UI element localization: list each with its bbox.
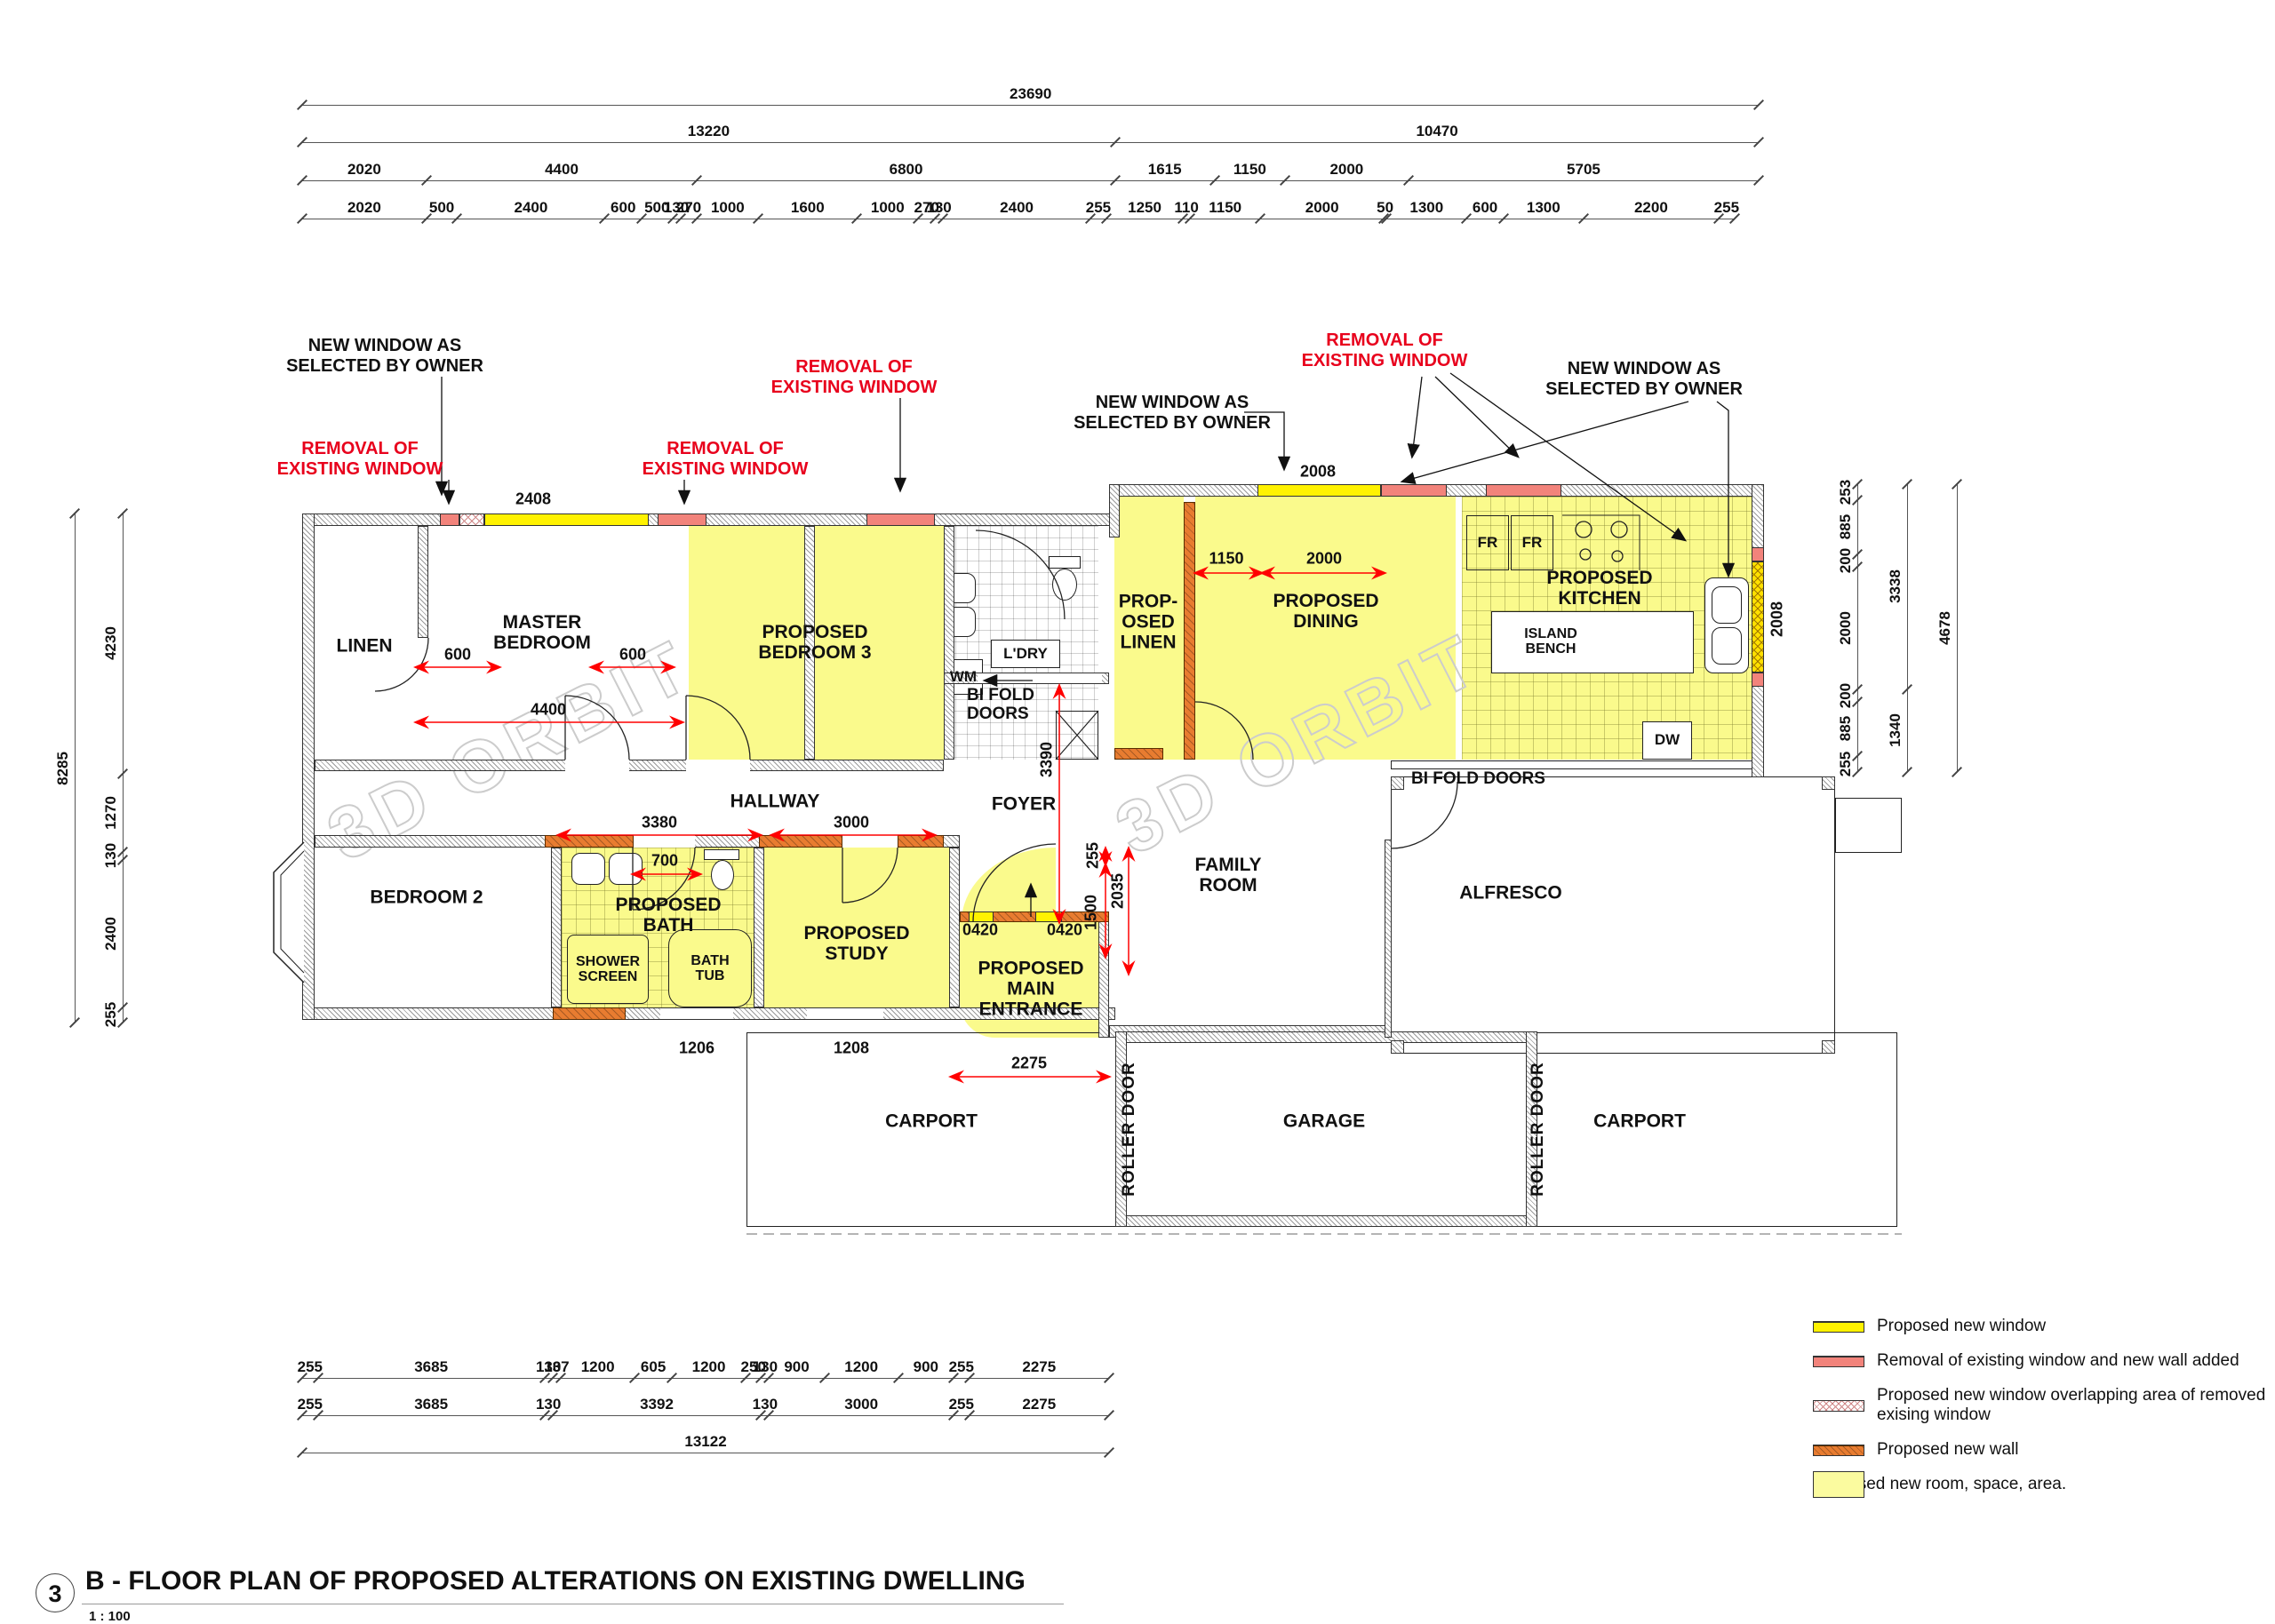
dimension-value: 255 [298,1396,323,1413]
dimension-line [302,1415,1109,1416]
label-shower-screen: SHOWER SCREEN [576,954,640,984]
dimension-line [302,219,1735,219]
legend-label: Removal of existing window and new wall … [1877,1351,2239,1371]
dimension-value: 600 [1473,199,1497,217]
dimension-value: 130 [102,843,120,868]
dimension-value: 255 [298,1358,323,1376]
room-label-carport-left: CARPORT [885,1111,978,1132]
room-label-kitchen: PROPOSED KITCHEN [1546,568,1652,609]
inline-dimension: 255 [1084,842,1103,869]
room-label-bedroom2: BEDROOM 2 [370,888,483,908]
legend-swatch-removal [1813,1356,1864,1367]
room-label-foyer: FOYER [992,794,1056,815]
dimension-value: 255 [1714,199,1739,217]
dimension-value: 885 [1837,514,1855,539]
room-label-carport-right: CARPORT [1593,1111,1686,1132]
inline-dimension: 0420 [1047,921,1082,940]
dimension-line [302,1378,1109,1379]
label-fridge: FR [1478,534,1498,552]
dimension-value: 200 [1837,547,1855,572]
dimension-value: 1200 [844,1358,878,1376]
dimension-value: 2000 [1837,611,1855,645]
dimension-line [1857,484,1858,772]
drawing-number: 3 [36,1573,75,1612]
dimension-value: 1615 [1148,161,1182,179]
label-bath-tub: BATH TUB [690,953,729,983]
inline-dimension: 3390 [1038,742,1057,777]
dimension-value: 900 [784,1358,809,1376]
legend-item: Proposed new window [1813,1317,2275,1336]
label-washing-machine: WM [950,668,977,686]
dimension-line [302,142,1759,143]
legend-item: Proposed new window overlapping area of … [1813,1386,2275,1425]
dimension-value: 13122 [684,1433,726,1451]
label-roller-door-right: ROLLER DOOR [1529,1062,1548,1196]
dimension-line [123,513,124,1023]
dimension-value: 3392 [640,1396,674,1413]
annotation-new-window: NEW WINDOW AS SELECTED BY OWNER [1074,393,1271,434]
dimension-value: 255 [1837,752,1855,776]
dimension-value: 4678 [1936,611,1954,645]
inline-dimension: 600 [444,646,471,665]
inline-dimension: 2000 [1306,550,1342,569]
legend-label: Proposed new window overlapping area of … [1877,1386,2275,1425]
dimension-value: 3338 [1887,570,1904,604]
dimension-value: 255 [102,1002,120,1027]
room-label-main-entrance: PROPOSED MAIN ENTRANCE [978,959,1083,1020]
dimension-value: 2020 [347,161,381,179]
dimension-value: 3000 [844,1396,878,1413]
dimension-line [1957,484,1958,772]
dimension-value: 253 [1837,480,1855,505]
dimension-value: 10470 [1416,123,1457,140]
dimension-value: 1000 [871,199,905,217]
inline-dimension: 2035 [1109,873,1128,909]
inline-dimension: 2008 [1768,601,1787,637]
dimension-value: 2020 [347,199,381,217]
dimension-value: 1000 [711,199,745,217]
dimension-value: 2000 [1305,199,1339,217]
room-label-study: PROPOSED STUDY [803,923,909,964]
inline-dimension: 1206 [679,1039,714,1058]
dimension-value: 1270 [102,796,120,830]
dimension-value: 8285 [54,752,72,785]
dimension-value: 1150 [1233,161,1266,179]
dimension-line [1907,484,1908,772]
room-label-bath: PROPOSED BATH [615,895,721,935]
drawing-title: B - FLOOR PLAN OF PROPOSED ALTERATIONS O… [85,1566,1026,1596]
label-roller-door-left: ROLLER DOOR [1120,1062,1139,1196]
label-fridge: FR [1522,534,1543,552]
dimension-line [75,513,76,1023]
dimension-value: 1300 [1409,199,1443,217]
dimension-value: 2200 [1634,199,1668,217]
drawing-scale: 1 : 100 [89,1609,131,1624]
room-label-hallway: HALLWAY [730,792,820,812]
dimension-value: 1200 [581,1358,615,1376]
legend-swatch-new-room [1813,1471,1864,1498]
dimension-value: 50 [1377,199,1393,217]
inline-dimension: 2408 [515,490,551,509]
dimension-value: 2275 [1022,1358,1056,1376]
dimension-value: 1300 [1527,199,1561,217]
label-bifold-doors-foyer: BI FOLD DOORS [967,686,1034,723]
dimension-value: 130 [536,1396,561,1413]
annotation-removal: REMOVAL OF EXISTING WINDOW [643,439,809,480]
label-island-bench: ISLAND BENCH [1524,626,1577,657]
dimension-value: 130 [926,199,951,217]
dimension-value: 255 [1086,199,1111,217]
dimension-value: 270 [676,199,701,217]
dimension-value: 1340 [1887,713,1904,747]
dimension-value: 137 [544,1358,569,1376]
dimension-value: 255 [949,1396,974,1413]
dimension-line [302,1453,1109,1453]
legend-swatch-overlap [1813,1400,1864,1412]
legend-item: Proposed new room, space, area. [1813,1475,2275,1494]
inline-dimension: 2008 [1300,463,1336,482]
inline-dimension: 1150 [1209,550,1243,569]
dimension-value: 6800 [890,161,923,179]
dimension-value: 255 [949,1358,974,1376]
room-label-proposed-linen: PROP- OSED LINEN [1119,592,1178,653]
dimension-value: 2400 [1000,199,1034,217]
dimension-value: 1600 [791,199,825,217]
room-label-laundry: L'DRY [1003,645,1048,663]
dimension-value: 500 [429,199,454,217]
dimension-value: 605 [641,1358,666,1376]
room-label-dining: PROPOSED DINING [1273,591,1378,632]
annotation-removal: REMOVAL OF EXISTING WINDOW [277,439,443,480]
inline-dimension: 3000 [834,814,869,832]
dimension-value: 1200 [692,1358,726,1376]
room-label-master-bedroom: MASTER BEDROOM [493,612,591,653]
dimension-value: 200 [1837,683,1855,708]
dimension-value: 4400 [545,161,579,179]
dimension-value: 2400 [102,917,120,951]
annotation-removal: REMOVAL OF EXISTING WINDOW [1302,330,1468,371]
inline-dimension: 2275 [1011,1055,1047,1073]
legend-item: Removal of existing window and new wall … [1813,1351,2275,1371]
dimension-value: 13220 [688,123,730,140]
inline-dimension: 1208 [834,1039,869,1058]
inline-dimension: 0420 [962,921,998,940]
room-label-bedroom3: PROPOSED BEDROOM 3 [758,622,871,663]
room-label-alfresco: ALFRESCO [1459,883,1562,904]
inline-dimension: 4400 [531,701,566,720]
legend-item: Proposed new wall [1813,1440,2275,1460]
floor-plan: 3D ORBIT 3D ORBIT [0,0,2275,1620]
dimension-line [302,180,1759,181]
inline-dimension: 1500 [1082,895,1101,930]
dimension-value: 4230 [102,626,120,660]
room-label-garage: GARAGE [1283,1111,1365,1132]
annotation-new-window: NEW WINDOW AS SELECTED BY OWNER [1545,359,1743,400]
dimension-value: 130 [753,1396,778,1413]
label-dishwasher: DW [1655,731,1680,749]
legend: Proposed new window Removal of existing … [1813,1317,2275,1509]
dimension-value: 130 [753,1358,778,1376]
room-label-family-room: FAMILY ROOM [1194,855,1261,896]
legend-label: Proposed new window [1877,1317,2046,1336]
annotation-removal: REMOVAL OF EXISTING WINDOW [771,357,938,398]
title-rule [82,1604,1064,1604]
dimension-value: 5705 [1567,161,1600,179]
dimension-value: 885 [1837,716,1855,741]
annotation-new-window: NEW WINDOW AS SELECTED BY OWNER [286,336,483,377]
dimension-value: 2000 [1329,161,1363,179]
dimension-value: 110 [1174,199,1198,217]
dimension-value: 900 [914,1358,938,1376]
legend-swatch-new-wall [1813,1445,1864,1456]
dimension-value: 600 [611,199,635,217]
dimension-value: 23690 [1010,85,1051,103]
dimension-value: 1250 [1128,199,1161,217]
dimension-value: 3685 [414,1396,448,1413]
dimension-value: 1150 [1209,199,1241,217]
inline-dimension: 600 [619,646,646,665]
dimension-value: 2275 [1022,1396,1056,1413]
dimension-value: 3685 [414,1358,448,1376]
legend-swatch-proposed-window [1813,1321,1864,1333]
legend-label: Proposed new wall [1877,1440,2018,1460]
room-label-linen: LINEN [337,636,393,657]
inline-dimension: 3380 [642,814,677,832]
label-bifold-doors-kitchen: BI FOLD DOORS [1411,769,1545,788]
inline-dimension: 700 [651,852,678,871]
dimension-line [302,105,1759,106]
dimension-value: 2400 [515,199,548,217]
